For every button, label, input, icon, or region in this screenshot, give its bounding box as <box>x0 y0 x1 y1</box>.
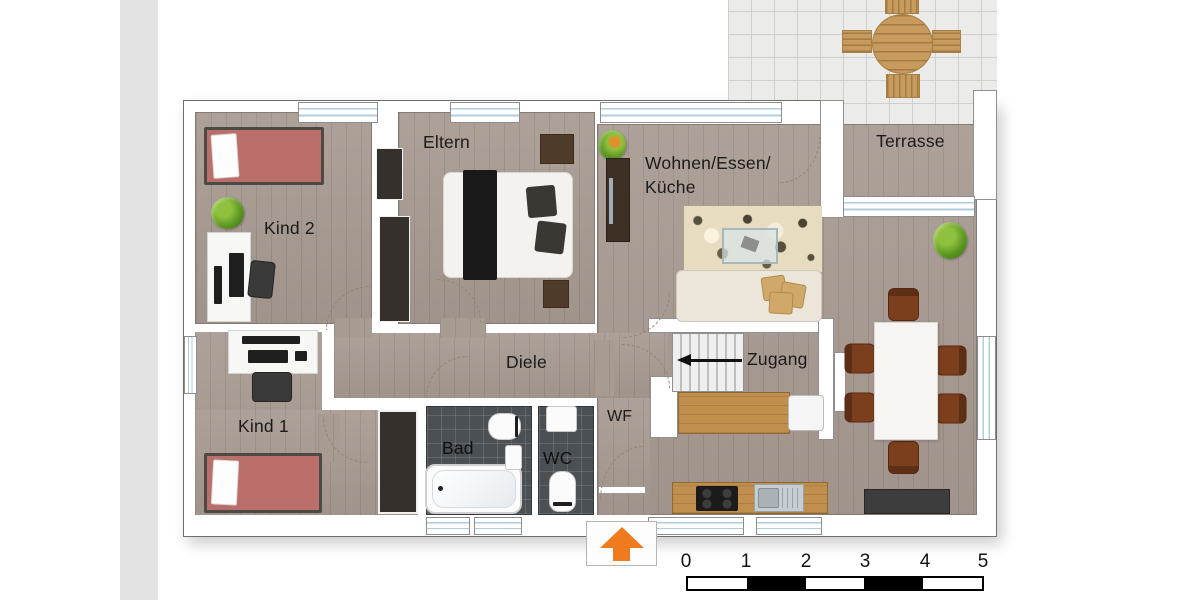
room-label-wohnen-line2: Küche <box>645 177 696 198</box>
kind2-pc-tower <box>229 253 244 297</box>
terrace-bench-right <box>932 30 961 53</box>
window-eltern-top <box>450 102 520 123</box>
bathtub-drain <box>438 486 443 491</box>
wc-sink <box>546 406 577 432</box>
kind2-chair <box>247 260 276 299</box>
eltern-pillow-2 <box>534 220 567 254</box>
wohnen-plant-icon <box>598 130 626 160</box>
entrance-arrow-icon <box>600 527 644 548</box>
wc-toilet-seat <box>553 502 572 506</box>
kitchen-sink-basin <box>758 488 779 508</box>
kitchen-island-counter <box>678 392 790 434</box>
scale-segment-2 <box>747 578 806 589</box>
terrace-table <box>872 14 933 74</box>
scale-bar <box>686 576 984 591</box>
dining-plant-icon <box>933 222 967 259</box>
scale-tick-3: 3 <box>854 551 876 573</box>
dining-chair-right-1 <box>936 346 967 376</box>
window-essen-right <box>977 336 996 440</box>
dining-chair-bottom <box>888 441 919 474</box>
door-opening-wohnen <box>594 340 614 396</box>
eltern-pillow-1 <box>526 185 558 218</box>
wall-terrace-pillar <box>820 100 844 218</box>
kind2-monitor <box>214 266 222 304</box>
entrance-arrow-stem <box>613 548 630 561</box>
terrace-bench-bottom <box>886 74 920 98</box>
kitchen-appliance <box>788 395 824 431</box>
tv-screen <box>609 178 613 224</box>
terrace-bench-left <box>842 30 872 53</box>
kind2-bed-pillow <box>210 133 239 179</box>
bathtub-inner <box>432 470 516 508</box>
window-bad-bottom-2 <box>474 517 522 535</box>
room-label-eltern: Eltern <box>423 132 470 153</box>
eltern-wardrobe-2 <box>379 216 410 322</box>
dining-table <box>874 322 938 440</box>
room-label-wohnen-line1: Wohnen/Essen/ <box>645 153 771 174</box>
scale-tick-2: 2 <box>795 551 817 573</box>
window-wohnen-top <box>600 102 782 123</box>
kind1-wardrobe <box>378 410 418 514</box>
window-bad-bottom-1 <box>426 517 470 535</box>
eltern-cabinet-top <box>540 134 574 164</box>
hallway-diele-floor <box>334 333 668 398</box>
kind2-plant-icon <box>211 197 244 229</box>
stairs-direction-arrow-icon <box>677 354 691 366</box>
scale-segment-5 <box>923 578 982 589</box>
cooktop-icon <box>696 486 738 511</box>
kind1-chair <box>252 372 292 402</box>
room-label-wf: WF <box>607 408 632 426</box>
kind1-mouse <box>295 351 307 361</box>
scale-tick-5: 5 <box>972 551 994 573</box>
scale-tick-1: 1 <box>735 551 757 573</box>
scale-tick-4: 4 <box>914 551 936 573</box>
eltern-wardrobe-1 <box>376 148 403 200</box>
scale-segment-4 <box>864 578 923 589</box>
room-label-zugang: Zugang <box>747 349 808 370</box>
room-label-kind1: Kind 1 <box>238 416 289 437</box>
window-kind2-top <box>298 102 378 123</box>
room-label-bad: Bad <box>442 438 474 459</box>
dining-chair-right-2 <box>936 394 967 424</box>
window-terrace-door <box>843 196 975 217</box>
kind1-keyboard <box>248 350 288 363</box>
room-label-wc: WC <box>543 448 573 469</box>
floor-plan-canvas: Kind 2 Eltern Wohnen/Essen/ Küche Terras… <box>0 0 1200 600</box>
room-label-diele: Diele <box>506 352 547 373</box>
sideboard <box>864 489 950 514</box>
window-kitchen-bottom-1 <box>648 517 744 535</box>
window-kind1-left <box>184 336 197 394</box>
room-label-kind2: Kind 2 <box>264 218 315 239</box>
eltern-cabinet-bottom <box>543 280 569 308</box>
bad-toilet-lid <box>515 416 518 437</box>
kind1-bed-pillow <box>211 459 239 505</box>
scale-segment-1 <box>688 578 747 589</box>
room-label-terrasse: Terrasse <box>876 131 945 152</box>
wall-right-upper <box>973 90 997 200</box>
left-gray-strip <box>120 0 158 600</box>
bad-sink <box>505 445 522 470</box>
dining-chair-left-1 <box>845 344 876 374</box>
kitchen-sink-drainer <box>782 488 801 508</box>
terrace-bench-top <box>885 0 919 14</box>
dining-chair-top <box>888 288 919 321</box>
window-kitchen-bottom-2 <box>756 517 822 535</box>
kind1-monitor <box>242 336 300 344</box>
scale-tick-0: 0 <box>675 551 697 573</box>
scale-segment-3 <box>806 578 865 589</box>
sofa-cushion-3 <box>768 291 793 314</box>
eltern-bed-runner <box>463 170 497 280</box>
stairs-direction-line <box>690 359 742 362</box>
dining-chair-left-2 <box>845 393 876 423</box>
